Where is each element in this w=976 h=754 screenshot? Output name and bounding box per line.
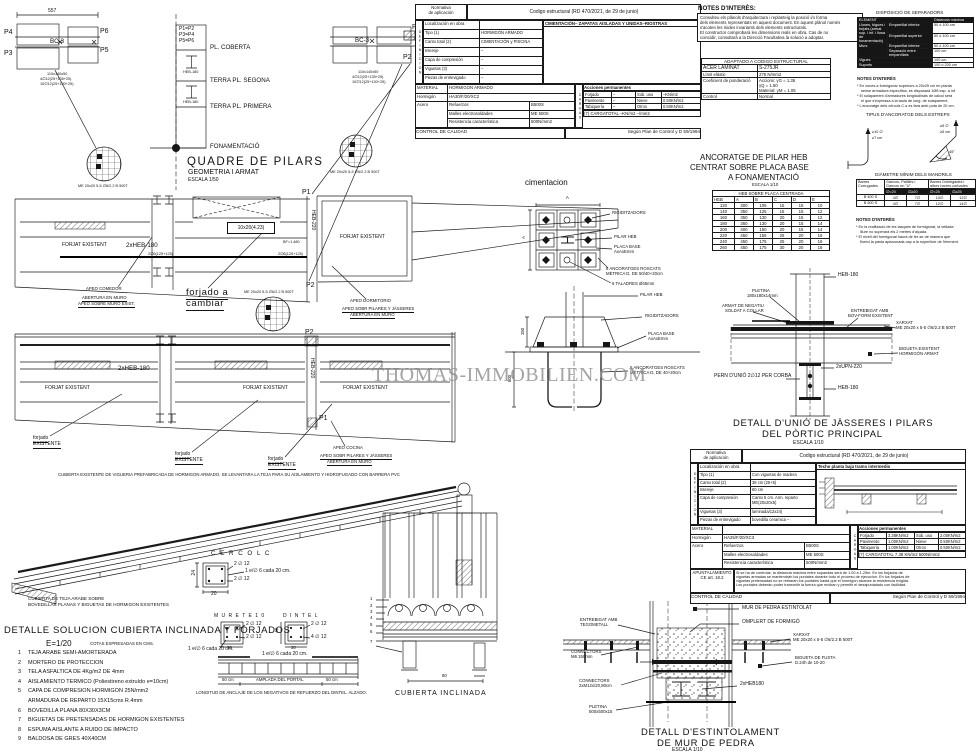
control-label: CONTROL DE CALIDAD xyxy=(690,593,830,604)
roof-caption: CUBIERTA DE TEJA ARABE SOBRE xyxy=(28,596,104,601)
pilar-label-p6: P6 xyxy=(100,28,109,36)
def-label: Localización en obra xyxy=(424,21,480,30)
notes-line: el que s'expressa a la taula de long. de… xyxy=(861,99,948,103)
hook-label: ≥5 ∅ xyxy=(940,124,949,128)
notes-line: lliure no superarà els 2 metres d'alçada… xyxy=(860,230,927,234)
table-cell: HORMIGÓN ARMADO xyxy=(480,30,543,39)
mat-label: MATERIAL xyxy=(691,526,723,535)
dim-label: AMPLADA DEL PORTAL xyxy=(256,678,304,683)
ancoratge-title: ANCORATGE DE PILAR HEB xyxy=(700,153,807,162)
apeo-note: APEO COCINA xyxy=(333,446,363,451)
adaptado-cell: Control xyxy=(702,94,758,100)
table-cell: CIMENTACIÓN y PISCINA xyxy=(480,39,543,48)
dim-label: 50 cm xyxy=(222,678,234,683)
table-cell: – xyxy=(480,75,543,84)
table-cell: Capa de compresión xyxy=(424,57,480,66)
reinf-label: 2∅6(125+125) xyxy=(148,252,173,256)
table-cell: Piezas de entrevigado xyxy=(699,517,751,525)
section-title-cimentacion: cimentacion xyxy=(525,178,568,187)
mat-label: Hormigón xyxy=(691,534,723,543)
table-header: Codigo estructural (RD 470/2021, de 29 d… xyxy=(742,449,966,463)
pilar-note: 110x140x50 xyxy=(47,72,67,76)
vertical-label: DEFINICION xyxy=(690,463,698,525)
beam-label-bc3: BC-3 xyxy=(50,38,64,45)
table-cell: CAPA DE COMPRESION HORMIGON 25N/mm2 xyxy=(28,688,218,698)
caption: LONGITUD DE ANCLAJE DE LOS NEGATIVOS DE … xyxy=(196,691,367,696)
pilar-label-p1: P1 xyxy=(319,415,328,423)
adaptado-cell: Coeficient de ponderació xyxy=(702,78,758,94)
table-cell: Otros xyxy=(915,545,939,551)
mat-label: Acero xyxy=(691,543,723,569)
profile-label: HEB-180 xyxy=(183,100,198,104)
apeo-note: APEO COMEDOR xyxy=(86,287,122,292)
adaptado-cell: Accions: γG = 1.35 γQ = 1.50 Material: γ… xyxy=(758,78,831,94)
mat-label: MATERIAL xyxy=(416,85,448,94)
table-cell: 1.00KN/m2 xyxy=(887,545,915,551)
cargas-header: Acciones permanentes xyxy=(858,525,966,532)
table-cell: 7∅ xyxy=(907,201,929,207)
callout: OMPLERT DE FORMIGÓ xyxy=(742,620,800,626)
notes-line: coincidir, consultarà a la Direcció Facu… xyxy=(700,35,860,40)
level-label: FONAMENTACIÓ xyxy=(210,143,259,150)
table-cell: 14∅ xyxy=(951,201,976,207)
mandrils-table: Barres Corrugades Ganxos, Patilles i Gan… xyxy=(856,179,976,207)
mat-value: HA30/F/20/XC2 xyxy=(448,93,575,102)
loc-value: CIMENTACIÓN– ZAPATAS AISLADAS Y UNIDAS–R… xyxy=(544,21,700,27)
dim-label: A xyxy=(566,196,569,201)
mandrils-cell: Ganxos, Patilles i Ganxos en "U" xyxy=(885,180,929,189)
notes-line: * L'ancoratge dels cèrcols C-s es farà a… xyxy=(857,104,955,108)
separadors-title: DISPOSICIÓ DE SEPARADORS xyxy=(876,10,943,15)
pilar-note: 10∅12(25+100+25) xyxy=(352,80,386,84)
table-cell: 0.50KN/m2 xyxy=(662,104,701,110)
pilar-label-p2: P2 xyxy=(403,54,412,62)
stirrup-label: 1 e/∅ 6 cada 20 cm. xyxy=(262,652,308,658)
layer-number: 1 xyxy=(370,597,372,602)
codigo-table-1: Normativa de aplicación Codigo estructur… xyxy=(415,4,701,139)
notes-line: flueixi la pasta apissonada cap a la sup… xyxy=(860,240,959,244)
callout: PERN D'UNIÓ 2∅12 PER CORBA xyxy=(714,374,791,380)
callout: AxAxEmm xyxy=(648,337,668,342)
table-cell: Tabiquería xyxy=(584,104,612,110)
mesh-note: ME 20x20 5-5 ∅6/2.2 B 500T xyxy=(330,170,380,174)
sep-cell: Emparrillat inferior xyxy=(888,23,933,34)
table-cell: 7 xyxy=(18,717,28,727)
pilar-label-p5: P5 xyxy=(100,47,109,55)
floor-sketch xyxy=(817,470,965,518)
hook-label: 45° xyxy=(949,150,955,154)
apeo-note: APEO DORMITORIO xyxy=(350,299,391,304)
callout: SOLDAT A COLLAR xyxy=(725,309,764,314)
layer-number: 5 xyxy=(370,623,372,628)
table-cell: – xyxy=(480,48,543,57)
table-header: Codigo estructural (RD 470/2021, de 29 d… xyxy=(467,4,701,20)
table-cell: 6 xyxy=(18,708,28,718)
sep-cell: Lloses, bigues i forjats (armat sup. i i… xyxy=(858,23,888,44)
corner-text: de aplicación xyxy=(428,10,453,15)
table-cell: B 500 S xyxy=(857,201,885,207)
table-cell xyxy=(18,698,28,708)
callout: HEB-180 xyxy=(838,386,858,392)
notes-box: Consulteu els plànols d'arquitectura i r… xyxy=(697,13,863,42)
mat-value: HA25/F/20/XC3 xyxy=(723,534,850,543)
adaptado-table: ADAPTADO A CODIGO ESTRUCTURAL ACER LAMIN… xyxy=(701,58,831,100)
callout: 500x500x15 xyxy=(589,710,612,715)
apunt-text: CE art. 18.2 xyxy=(701,575,724,580)
table-cell: TELA ASFALTICA DE 4Kg/m2 DE 4mm xyxy=(28,669,218,679)
mat-value: B500S xyxy=(530,102,575,111)
table-cell: BALDOSA DE GRES 40X40CM xyxy=(28,736,218,746)
section-title-dintel: D I N T E L xyxy=(283,614,319,620)
def-value xyxy=(751,464,816,472)
mat-label: Hormigón xyxy=(416,93,448,102)
notes-line: sense armadura específica, es disposarà … xyxy=(861,89,956,93)
beam-label: 2xHEB-180 xyxy=(118,365,150,372)
dim-label: 50 cm xyxy=(326,678,338,683)
dim-label: 24 xyxy=(192,570,198,576)
note-forjado-cambiar: cambiar xyxy=(186,299,224,311)
layer-number: 6 xyxy=(370,630,372,635)
sep-cell: Suports xyxy=(858,63,933,68)
callout: ME 20x20 x 5-5 ∅6/2.2 B 500T xyxy=(896,326,956,331)
callout: RIGIDITZADORS xyxy=(612,211,646,216)
callout: D.24h de 10-20 xyxy=(795,661,825,666)
callout: RIGIDITZADORS xyxy=(645,314,679,319)
adaptado-cell: ACER LAMINAT xyxy=(702,65,758,72)
stirrup-label: 1 e/∅ 6 cada 20 cm. xyxy=(245,569,291,575)
callout: AxAxEmm xyxy=(614,250,634,255)
table-cell: 3 xyxy=(18,669,28,679)
pilar-note: 4∅12(25+135+25) xyxy=(352,75,383,79)
vertical-label: DEFINICION xyxy=(415,20,423,84)
note-forjado-existente: EXISTENTE xyxy=(33,442,61,449)
sep-cell: 50 ó 100 cm xyxy=(933,33,974,44)
ancoratge-title: CENTRAT SOBRE PLACA BASE xyxy=(690,163,809,172)
mat-value: ME 500S xyxy=(530,110,575,119)
adaptado-cell: Normal xyxy=(758,94,831,100)
level-label: TERRA PL. PRIMERA xyxy=(210,103,272,110)
layer-number: 7 xyxy=(370,640,372,645)
dim-label: 80 xyxy=(442,674,447,679)
mat-label: Refuerzos xyxy=(723,543,805,552)
mat-label: Acero xyxy=(416,102,448,128)
table-cell: Piezas de entrevigado xyxy=(424,75,480,84)
table-cell: 1 xyxy=(18,650,28,660)
solution-list: 1TEJA ARABE SEMI-AMORTERADA2MORTERO DE P… xyxy=(18,650,218,746)
cargas-total: (7) CARGATOTAL –KN/m2 –/mm2 xyxy=(583,110,701,117)
note-forjado-existente: EXISTENTE xyxy=(175,458,203,465)
scale-label: ESCALA 1/10 xyxy=(672,748,703,754)
table-cell: 20 xyxy=(792,245,811,251)
callout: M6 150mm xyxy=(571,655,593,660)
table-cell: 12∅ xyxy=(929,201,951,207)
section-title-cercol: C E R C O L C xyxy=(211,550,271,557)
control-label: CONTROL DE CALIDAD xyxy=(415,128,565,139)
cotas-label: COTAS EXPRESADAS EN CMS. xyxy=(90,642,154,647)
pilar-label-p1: P1 xyxy=(302,189,311,197)
apeo-note: ABERTURA EN MURO xyxy=(350,313,395,319)
table-cell: 4 xyxy=(18,679,28,689)
rebar-label: 4 ∅ 12 xyxy=(311,635,326,641)
table-corner: Normativa de aplicación xyxy=(690,449,742,463)
plan-label-forjat: FORJAT EXISTENT xyxy=(340,235,385,241)
callout: HEB-180 xyxy=(838,273,858,279)
table-cell: Viguetas (3) xyxy=(424,66,480,75)
table-cell: 175 xyxy=(754,245,773,251)
table-cell: Canto total (2) xyxy=(699,479,751,487)
mandrils-cell: Barres Doblegades i altres barres corbad… xyxy=(929,180,976,189)
mat-label: Malles electrosoldades xyxy=(723,551,805,560)
rebar-label: 2 ∅ 12 xyxy=(234,562,249,568)
callout: PILAR HEB xyxy=(640,293,662,298)
callout: ME 20x20 x 5-5 ∅6/2.2 B 500T xyxy=(793,638,853,643)
coef-line: Material: γM = 1.05 xyxy=(759,88,796,93)
apunt-label: APUNTALAMIENTO CE art. 18.2 xyxy=(690,569,734,593)
control-value: Según Plan de Control y D 59/1994 xyxy=(565,128,701,139)
beam-tag: 10x20(4.23) xyxy=(227,222,275,234)
plan-label-forjat: FORJAT EXISTENT xyxy=(243,386,288,392)
table-cell: Con viguetas de madera xyxy=(751,471,816,479)
callout: PILAR HEB xyxy=(614,235,636,240)
heb-table: HEB SOBRE PLACA CENTRADA HEB A B C D E 1… xyxy=(712,190,830,251)
control-value: Según Plan de Control y D 59/1994 xyxy=(830,593,966,604)
pilar-label-p2: P2 xyxy=(306,282,315,290)
mat-value: ME 500S xyxy=(805,551,850,560)
drawing-canvas: THOMAS-IMMOBILIEN.COM 557 P4 P3 P6 P5 BC… xyxy=(0,0,976,754)
mat-value: 500N/mm2 xyxy=(530,119,575,128)
mat-value: HORMIGON ARMADO xyxy=(448,85,575,94)
table-corner: Normativa de aplicación xyxy=(415,4,467,20)
rebar-label: 2 ∅ 12 xyxy=(246,635,261,641)
level-label: TERRA PL. SEGONA xyxy=(210,77,270,84)
section-title-murete: M U R E T E 1 0 xyxy=(214,614,265,620)
table-cell: 5 xyxy=(18,688,28,698)
notes-title: NOTES D'INTERÈS xyxy=(857,77,896,82)
table-cell: 450 xyxy=(735,245,754,251)
rebar-label: 2 ∅ 12 xyxy=(246,622,261,628)
sep-cell: Murs xyxy=(858,44,888,58)
profile-label: HEB-180 xyxy=(183,70,198,74)
table-cell: 38 cm (25+5) xyxy=(751,479,816,487)
sep-cell: Separació entre emparrillats xyxy=(888,49,933,58)
table-cell: Capa de compresión xyxy=(699,495,751,509)
cargas-total: (7) CARGATOTAL 7.38 KN/m2 500N/mm2 xyxy=(858,551,966,558)
dim-label: BF=1.480 xyxy=(283,240,300,244)
table-cell: Viguetas (3) xyxy=(699,509,751,517)
notes-line: * El solapament d'armadures longitudinal… xyxy=(857,94,952,98)
notes-line: * En zones a formigonar superiors a 20x2… xyxy=(857,84,952,88)
pilar-label-p4: P4 xyxy=(4,29,13,37)
table-cell: 60 cm xyxy=(751,487,816,495)
roof-caption: BOVEDILLAS PLANAS Y BIGUETAS DE HORMIGON… xyxy=(28,602,169,607)
beam-label: 2xHEB-180 xyxy=(126,242,158,249)
callout: 180x180x14mm xyxy=(747,294,778,299)
sep-cell: 50 ó 100 cm xyxy=(933,23,974,34)
rebar-label: 2 ∅ 12 xyxy=(311,622,326,628)
table-cell: Intereje xyxy=(424,48,480,57)
watermark: THOMAS-IMMOBILIEN.COM xyxy=(372,364,646,387)
pilar-label-p2: P2 xyxy=(305,329,314,337)
apunt-note: Los puntales deberán poder transmitir la… xyxy=(736,583,964,587)
table-cell: 0.50KN/m2 xyxy=(939,545,966,551)
section-title-cubierta: CUBIERTA INCLINADA xyxy=(395,690,487,698)
adaptado-cell: S-275JR xyxy=(758,65,831,72)
table-cell: 9 xyxy=(18,736,28,746)
mandrils-cell: Barres Corrugades xyxy=(857,180,885,195)
callout: BOV-FORM EXISTENT xyxy=(848,314,893,319)
callout: 2xUPN-220 xyxy=(836,365,862,371)
rebar-label: 2 ∅ 12 xyxy=(234,577,249,583)
mat-value: 500N/mm2 xyxy=(805,560,850,569)
reinf-label: 2∅6(125+125) xyxy=(278,252,303,256)
table-cell: – xyxy=(612,104,636,110)
pilar-note: 110x140x50 xyxy=(358,70,378,74)
apeo-note: ABERTURA EN MURO xyxy=(327,460,372,466)
notes-line: * En la realització de les tasques de fo… xyxy=(856,225,954,229)
table-cell: Canto total (2) xyxy=(424,39,480,48)
roof-note: CUBIERTA EXISTENTE DE VIGUERIA PREFABRIC… xyxy=(58,473,400,478)
table-cell: ESPUMA AISLANTE A RUIDO DE IMPACTO xyxy=(28,727,218,737)
mat-label: Refuerzos xyxy=(448,102,530,111)
table-cell: AISLAMIENTO TERMICO (Poliestireno extruí… xyxy=(28,679,218,689)
table-cell: 30 xyxy=(773,245,792,251)
dim-label: A xyxy=(522,236,527,239)
pilar-label-p3: P3 xyxy=(4,50,13,58)
note-forjado-existente: EXISTENTE xyxy=(268,463,296,470)
table-cell: MORTERO DE PROTECCION xyxy=(28,660,218,670)
table-cell: Tipo (1) xyxy=(424,30,480,39)
dim-label: 150 xyxy=(521,328,526,335)
dim-label: 40 xyxy=(275,628,280,633)
separadors-table: ELEMENTDistància màxima Lloses, bigues i… xyxy=(857,17,974,68)
table-cell: BOVEDILLA PLANA 80X30X3CM xyxy=(28,708,218,718)
table-cell: ARMADURA DE REPARTO 15X15cms R.4mm xyxy=(28,698,218,708)
dim-label: 30 xyxy=(291,646,296,651)
table-cell: – xyxy=(480,57,543,66)
cargas-header: Acciones permanentes xyxy=(583,84,701,91)
table-cell: Otros xyxy=(636,104,662,110)
table-cell: 18 xyxy=(811,245,830,251)
table-cell: 2 xyxy=(18,660,28,670)
def-label: Localización en obra xyxy=(699,464,751,472)
scale-label: ESCALA 1/50 xyxy=(188,178,219,184)
table-cell: 4∅ xyxy=(885,201,907,207)
mandrils-title: DIÀMETRE MÍNIM DELS MANDRILS xyxy=(875,172,952,177)
callout: 6 TALADRES Ø45mm xyxy=(612,282,654,287)
mat-value: B500S xyxy=(805,543,850,552)
sep-cell: 100 ó 200 cm xyxy=(933,63,974,68)
apeo-note: APEO SOBRE MURO EXIST. xyxy=(78,302,135,308)
dim-label: 20 xyxy=(211,592,217,598)
callout: 2xM12x/20,80cm xyxy=(579,684,612,689)
table-cell: Tabiquería xyxy=(859,545,887,551)
codigo-table-2: Normativa de aplicación Codigo estructur… xyxy=(690,449,966,604)
hook-label: ≥7 cm xyxy=(872,136,882,140)
callout: MÈTRICA D, DE 50/40+20cm xyxy=(606,272,663,277)
table-cell: bovedilla ceramica – xyxy=(751,517,816,525)
table-cell: 260 xyxy=(713,245,735,251)
table-cell: Tipo (1) xyxy=(699,471,751,479)
scale-label: ESCALA 1/10 xyxy=(752,183,778,188)
def-value xyxy=(480,21,543,30)
layer-number: 4 xyxy=(370,616,372,621)
profile-label: HEB-220 xyxy=(309,210,315,230)
schedule-row: P5=P6 xyxy=(179,39,194,45)
notes-title: NOTES D'INTERÈS xyxy=(856,218,895,223)
corner-text: de aplicación xyxy=(703,455,728,460)
mat-label: Resistencia característica xyxy=(448,119,530,128)
scale-label: E=1/20 xyxy=(46,639,72,648)
pilar-note: 10∅12(25+100+25) xyxy=(40,82,74,86)
mat-label: Malles electrosoldades xyxy=(448,110,530,119)
hook-label: ≥5 cm xyxy=(940,130,950,134)
table-cell: Intereje xyxy=(699,487,751,495)
level-label: PL. COBERTA xyxy=(210,44,250,51)
callout: TEGOMETALL xyxy=(580,623,609,628)
beam-label-bc3: BC-3 xyxy=(355,37,369,44)
section-subtitle: GEOMETRIA I ARMAT xyxy=(188,169,259,177)
ancoratge-title: A FONAMENTACIÓ xyxy=(728,173,799,182)
dim-label: 557 xyxy=(48,9,56,15)
notes-line: * El nivell del formigonat haurà de fer-… xyxy=(856,235,950,239)
table-cell: 8 xyxy=(18,727,28,737)
sep-cell: 100 cm xyxy=(933,49,974,58)
table-cell: laminada/12x24) xyxy=(751,509,816,517)
callout: MUR DE PEDRA ESTINTOLAT xyxy=(742,606,812,612)
plan-label-forjat: FORJAT EXISTENT xyxy=(62,243,107,249)
dim-label: 30 xyxy=(227,646,232,651)
mat-value xyxy=(723,526,850,535)
callout: 2xHEB180 xyxy=(740,682,764,688)
scale-label: ESCALA 1/10 xyxy=(793,441,824,447)
hook-label: ≥10 ∅ xyxy=(872,130,883,134)
callout: HORMIGÓN ARMAT xyxy=(899,352,939,357)
vertical-label: CARGAS xyxy=(575,84,583,128)
vertical-label: CARGAS xyxy=(850,525,858,569)
table-cell: – xyxy=(480,66,543,75)
pilar-note: 4∅12(25+135+25) xyxy=(40,77,71,81)
profile-label: HEB-220 xyxy=(308,358,314,378)
table-cell: Canto 5 cm. Arm. reparto ME(20x20x5) xyxy=(751,495,816,509)
plan-label-forjat: FORJAT EXISTENT xyxy=(45,386,90,392)
table-cell: BIGUETAS DE PRETENSADAS DE HORMIGON EXIS… xyxy=(28,717,218,727)
notes-title: NOTES D'INTERÈS: xyxy=(698,5,756,12)
sep-cell: Emparrillat superior xyxy=(888,33,933,44)
mesh-note: ME 20x20 5-5 ∅6/2.2 B 500T xyxy=(244,290,294,294)
mesh-note: ME 20x20 5-5 ∅6/2.2 B 500T xyxy=(78,184,128,188)
section-title-quadre: QUADRE DE PILARS xyxy=(187,156,323,169)
mat-label: Resistencia característica xyxy=(723,560,805,569)
tipus-title: TIPUS D'ANCORATGE DELS ESTREPS xyxy=(866,112,950,117)
